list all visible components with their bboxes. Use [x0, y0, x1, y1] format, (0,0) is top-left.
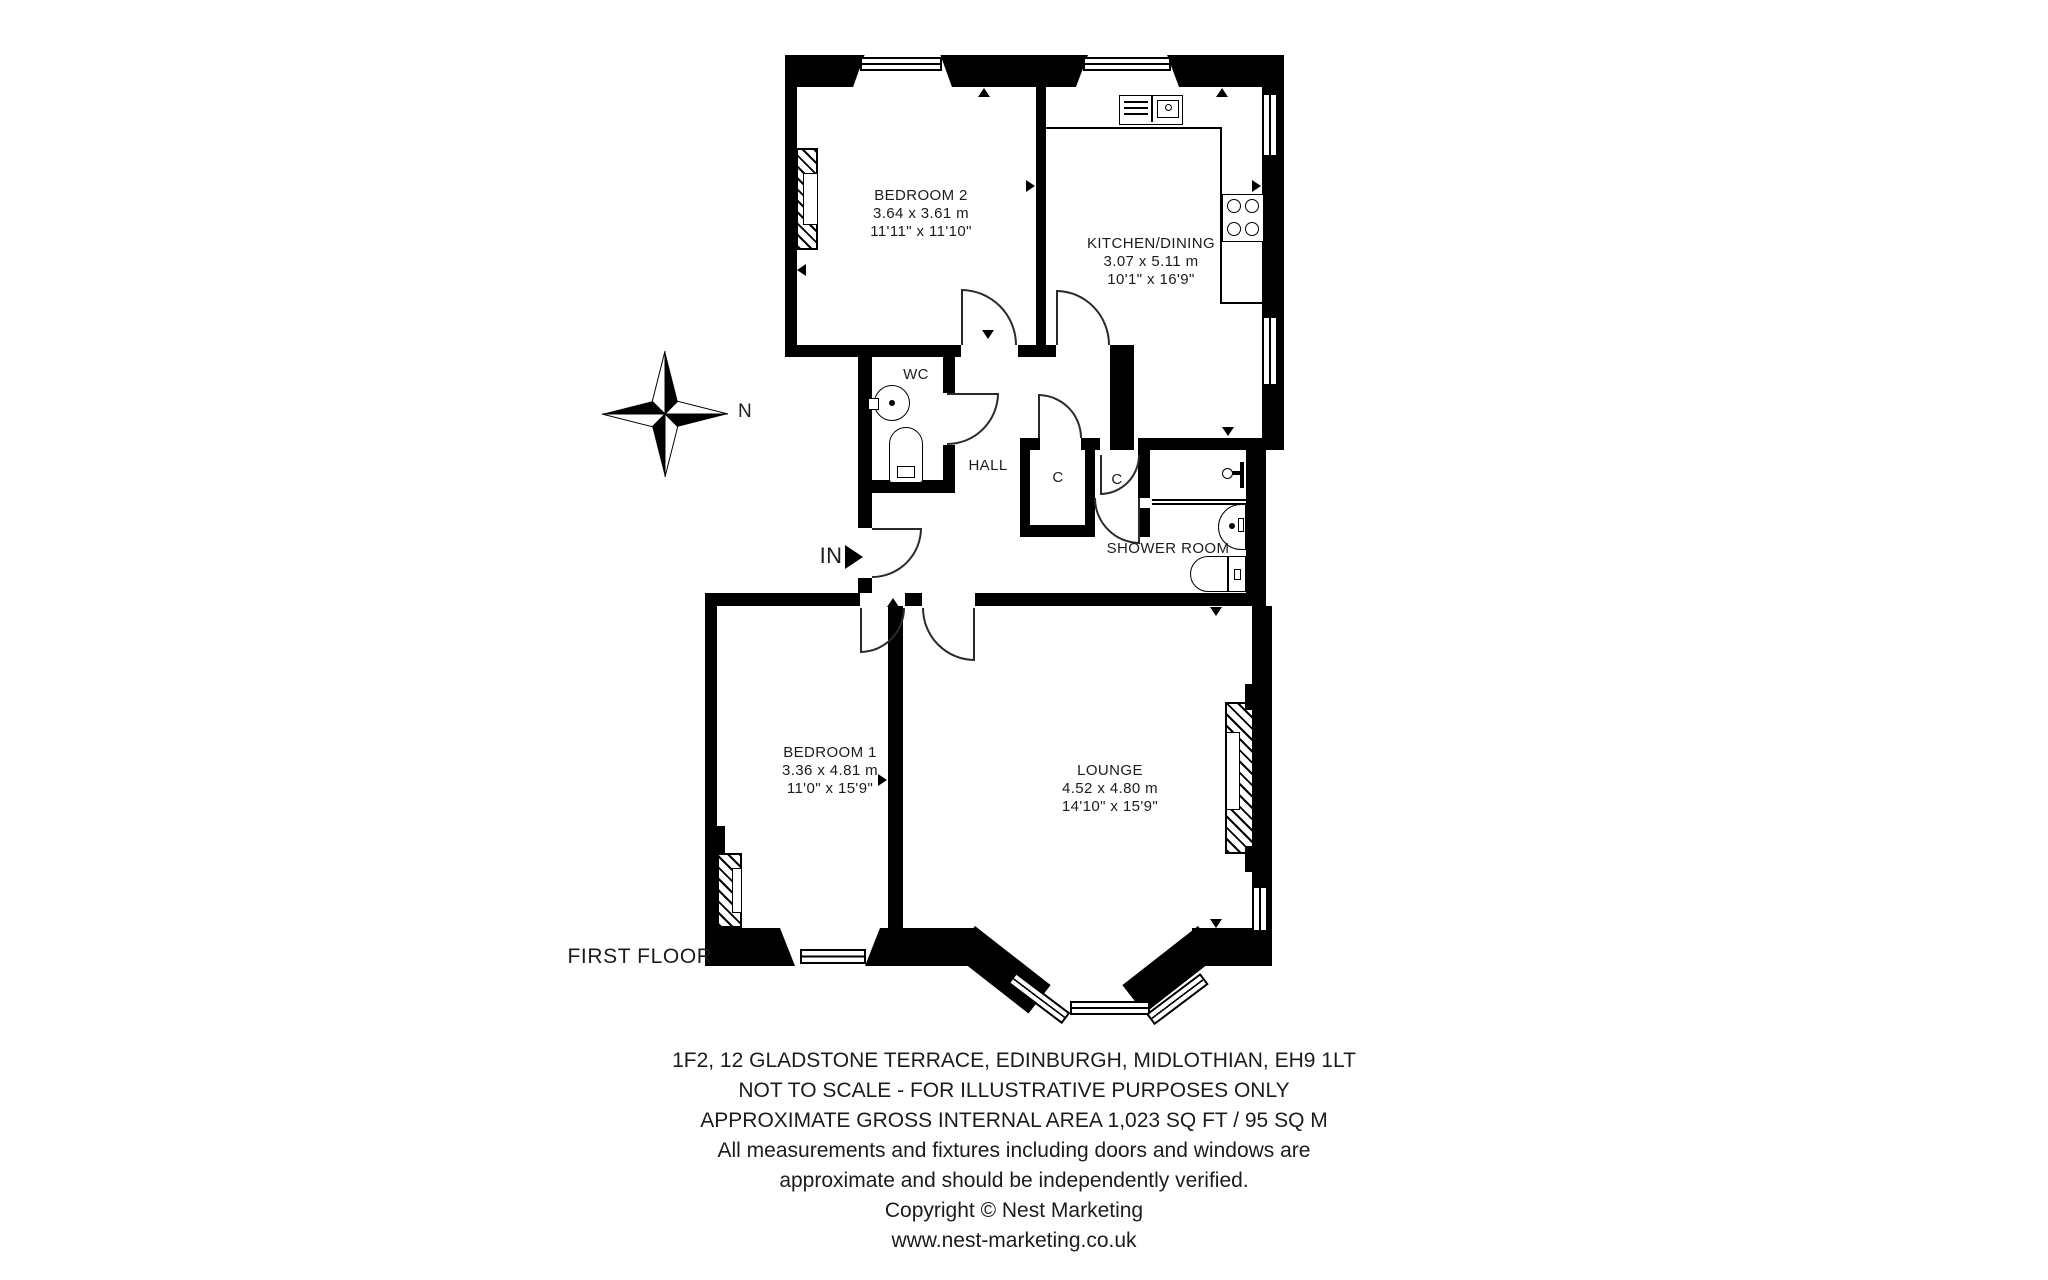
bedroom2-press-inner [803, 173, 818, 225]
entry-arrow-icon [845, 545, 863, 569]
hob-burner-icon [1245, 199, 1259, 213]
shower-door-arc [1094, 498, 1140, 544]
room-dim-metric: 3.07 x 5.11 m [1087, 253, 1215, 271]
shower-basin-dot [1229, 523, 1235, 529]
marker-icon [1252, 180, 1261, 192]
lounge-door-arc [922, 608, 975, 661]
kitchen-east-window-lower [1262, 316, 1278, 386]
compass-rose-icon [600, 349, 730, 479]
footer-area: APPROXIMATE GROSS INTERNAL AREA 1,023 SQ… [524, 1106, 1504, 1136]
room-label-bedroom2: BEDROOM 2 3.64 x 3.61 m 11'11" x 11'10" [870, 187, 972, 241]
room-label-closet1: C [1052, 469, 1063, 487]
wall-wc-west-2 [858, 578, 872, 593]
wall-shower-east [1246, 450, 1266, 606]
wall-mid-1 [705, 593, 860, 606]
footer-disclaimer-measurements-2: approximate and should be independently … [524, 1166, 1504, 1196]
wall-shower-north [1146, 438, 1284, 450]
room-name: BEDROOM 2 [870, 187, 972, 205]
wall-kitchen-sw [1110, 345, 1134, 450]
sink-drainer-line [1124, 113, 1148, 115]
marker-icon [707, 812, 716, 824]
room-dim-metric: 3.36 x 4.81 m [782, 762, 878, 780]
sink-divider [1151, 96, 1153, 122]
marker-icon [1222, 427, 1234, 436]
entry-label: IN [820, 544, 843, 568]
wall-closet-top-1 [1020, 438, 1040, 450]
marker-icon [878, 774, 887, 786]
wc-toilet-cistern [897, 466, 915, 478]
room-name: LOUNGE [1062, 762, 1158, 780]
wall-wc-east-2 [943, 445, 955, 480]
footer-text-block: 1F2, 12 GLADSTONE TERRACE, EDINBURGH, MI… [524, 1046, 1504, 1256]
kitchen-window [1083, 57, 1171, 71]
kitchen-east-window-upper [1262, 93, 1278, 157]
footer-disclaimer-measurements-1: All measurements and fixtures including … [524, 1136, 1504, 1166]
shower-head-icon [1222, 468, 1233, 479]
lounge-east-window [1252, 886, 1268, 932]
marker-icon [1210, 607, 1222, 616]
floorplan-canvas: IN N BEDROOM 2 3.64 x 3.61 m 11'11" x 11… [0, 0, 2048, 1280]
shower-basin-tap [1238, 518, 1244, 532]
wall-bed1-lounge-divider [888, 606, 903, 966]
marker-icon [1026, 180, 1035, 192]
wc-door-arc [947, 393, 999, 445]
marker-icon [890, 919, 902, 928]
footer-address: 1F2, 12 GLADSTONE TERRACE, EDINBURGH, MI… [524, 1046, 1504, 1076]
wc-basin-dot [889, 400, 895, 406]
compass-north-label: N [738, 403, 752, 421]
room-label-closet2: C [1111, 471, 1122, 489]
kitchen-sink [1119, 95, 1183, 125]
marker-icon [982, 330, 994, 339]
room-label-shower: SHOWER ROOM [1107, 540, 1230, 558]
shower-toilet-bowl [1190, 556, 1228, 592]
footer-website: www.nest-marketing.co.uk [524, 1226, 1504, 1256]
room-dim-imperial: 14'10" x 15'9" [1062, 798, 1158, 816]
wall-mid-2 [905, 593, 922, 606]
wall-bed2-kitchen-divider [1036, 87, 1046, 345]
marker-icon [1210, 919, 1222, 928]
kitchen-counter-top-line [1046, 127, 1222, 129]
footer-disclaimer-scale: NOT TO SCALE - FOR ILLUSTRATIVE PURPOSES… [524, 1076, 1504, 1106]
room-label-lounge: LOUNGE 4.52 x 4.80 m 14'10" x 15'9" [1062, 762, 1158, 816]
shower-screen-line-2 [1152, 503, 1246, 505]
room-name: BEDROOM 1 [782, 744, 878, 762]
wall-bed1-west [705, 606, 717, 966]
bay-window-center [1070, 1001, 1150, 1015]
room-name: KITCHEN/DINING [1087, 235, 1215, 253]
wall-wc-west-1 [858, 357, 872, 528]
marker-icon [1216, 88, 1228, 97]
marker-icon [978, 88, 990, 97]
wall-closet-top-2 [1081, 438, 1100, 450]
shower-head-bar [1240, 462, 1244, 488]
wall-wc-east-1 [943, 357, 955, 393]
closet1-door-arc [1038, 394, 1082, 438]
shower-screen-line-1 [1152, 499, 1246, 501]
footer-copyright: Copyright © Nest Marketing [524, 1196, 1504, 1226]
bedroom2-window [860, 57, 942, 71]
sink-tap-icon [1165, 104, 1172, 111]
floor-label: FIRST FLOOR [567, 948, 712, 966]
lounge-chimney-inner [1226, 732, 1240, 810]
hob-burner-icon [1227, 222, 1241, 236]
marker-icon [887, 598, 899, 607]
kitchen-counter-end-line [1222, 302, 1262, 304]
marker-icon [797, 264, 806, 276]
room-dim-metric: 4.52 x 4.80 m [1062, 780, 1158, 798]
room-label-bedroom1: BEDROOM 1 3.36 x 4.81 m 11'0" x 15'9" [782, 744, 878, 798]
bedroom1-window [800, 949, 866, 964]
wall-closet-bottom [1020, 525, 1095, 537]
kitchen-hob [1222, 194, 1264, 242]
wall-hall-north-1 [785, 345, 961, 357]
room-label-hall: HALL [968, 457, 1007, 475]
wall-closet-west [1020, 450, 1030, 537]
sink-drainer-line [1124, 101, 1148, 103]
wc-basin-tap-icon [868, 398, 879, 410]
shower-toilet-button [1234, 569, 1241, 580]
wall-mid-3 [975, 593, 1265, 606]
lounge-chimney-jog-top [1245, 684, 1254, 710]
room-dim-imperial: 11'11" x 11'10" [870, 223, 972, 241]
entry-door-arc [872, 528, 922, 578]
wall-closet-mid [1085, 450, 1095, 537]
room-label-kitchen: KITCHEN/DINING 3.07 x 5.11 m 10'1" x 16'… [1087, 235, 1215, 289]
room-label-wc: WC [903, 366, 929, 384]
kitchen-door-arc [1056, 290, 1110, 345]
bedroom1-chimney-inner [732, 868, 742, 913]
room-dim-imperial: 11'0" x 15'9" [782, 780, 878, 798]
lounge-chimney-jog-bottom [1245, 846, 1254, 872]
room-dim-imperial: 10'1" x 16'9" [1087, 271, 1215, 289]
sink-drainer-line [1124, 107, 1148, 109]
hob-burner-icon [1245, 222, 1259, 236]
hob-burner-icon [1227, 199, 1241, 213]
room-dim-metric: 3.64 x 3.61 m [870, 205, 972, 223]
wall-hall-north-2 [1018, 345, 1056, 357]
